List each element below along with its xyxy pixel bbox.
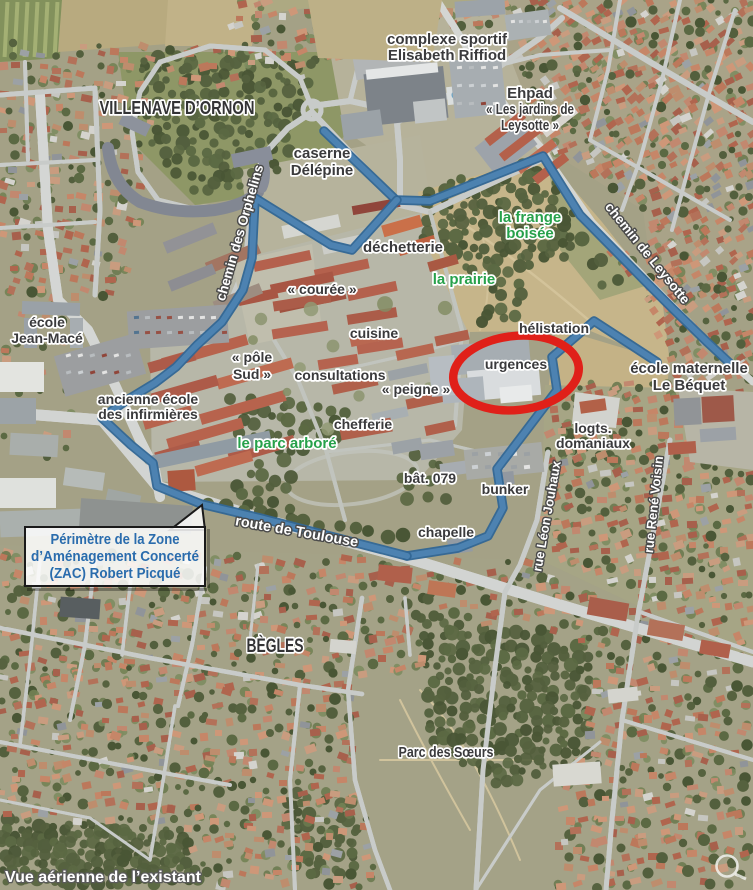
- svg-text:ancienne école: ancienne école: [98, 391, 199, 407]
- svg-text:cuisine: cuisine: [350, 325, 398, 341]
- svg-text:complexe sportif: complexe sportif: [387, 31, 508, 48]
- svg-text:école: école: [29, 314, 65, 330]
- svg-text:domaniaux: domaniaux: [556, 435, 630, 451]
- svg-text:des infirmières: des infirmières: [98, 406, 198, 422]
- svg-text:déchetterie: déchetterie: [363, 239, 443, 256]
- svg-text:Parc des Sœurs: Parc des Sœurs: [399, 745, 494, 761]
- svg-text:Sud »: Sud »: [233, 366, 271, 382]
- svg-text:Jean-Macé: Jean-Macé: [11, 330, 83, 346]
- svg-text:Leysotte »: Leysotte »: [501, 117, 559, 134]
- svg-text:consultations: consultations: [294, 367, 385, 383]
- svg-text:(ZAC) Robert Picqué: (ZAC) Robert Picqué: [50, 566, 181, 582]
- svg-text:la prairie: la prairie: [433, 271, 496, 288]
- svg-text:urgences: urgences: [485, 356, 547, 372]
- svg-text:Délépine: Délépine: [291, 162, 354, 179]
- svg-text:logts.: logts.: [574, 420, 611, 436]
- svg-text:chefferie: chefferie: [334, 416, 393, 432]
- svg-text:BÈGLES: BÈGLES: [247, 634, 304, 657]
- svg-text:boisée: boisée: [506, 225, 554, 242]
- svg-text:« Les jardins de: « Les jardins de: [486, 101, 574, 118]
- svg-text:« courée »: « courée »: [287, 281, 356, 297]
- svg-text:« pôle: « pôle: [232, 349, 273, 365]
- svg-text:la frange: la frange: [499, 209, 562, 226]
- svg-text:VILLENAVE D’ORNON: VILLENAVE D’ORNON: [100, 98, 255, 118]
- svg-text:Vue aérienne de l’existant: Vue aérienne de l’existant: [5, 869, 202, 886]
- svg-text:Le Béquet: Le Béquet: [653, 377, 726, 394]
- svg-text:Elisabeth Riffiod: Elisabeth Riffiod: [388, 47, 506, 64]
- svg-text:bât. 079: bât. 079: [404, 470, 456, 486]
- svg-text:Ehpad: Ehpad: [507, 85, 553, 102]
- svg-text:hélistation: hélistation: [519, 320, 589, 336]
- svg-text:école maternelle: école maternelle: [630, 360, 748, 377]
- svg-text:chapelle: chapelle: [418, 524, 474, 540]
- svg-text:caserne: caserne: [294, 145, 351, 162]
- svg-text:le parc arboré: le parc arboré: [237, 435, 336, 452]
- svg-text:Périmètre de la Zone: Périmètre de la Zone: [51, 532, 180, 548]
- svg-text:bunker: bunker: [482, 481, 529, 497]
- svg-text:d’Aménagement Concerté: d’Aménagement Concerté: [31, 549, 199, 565]
- svg-text:« peigne »: « peigne »: [382, 381, 451, 397]
